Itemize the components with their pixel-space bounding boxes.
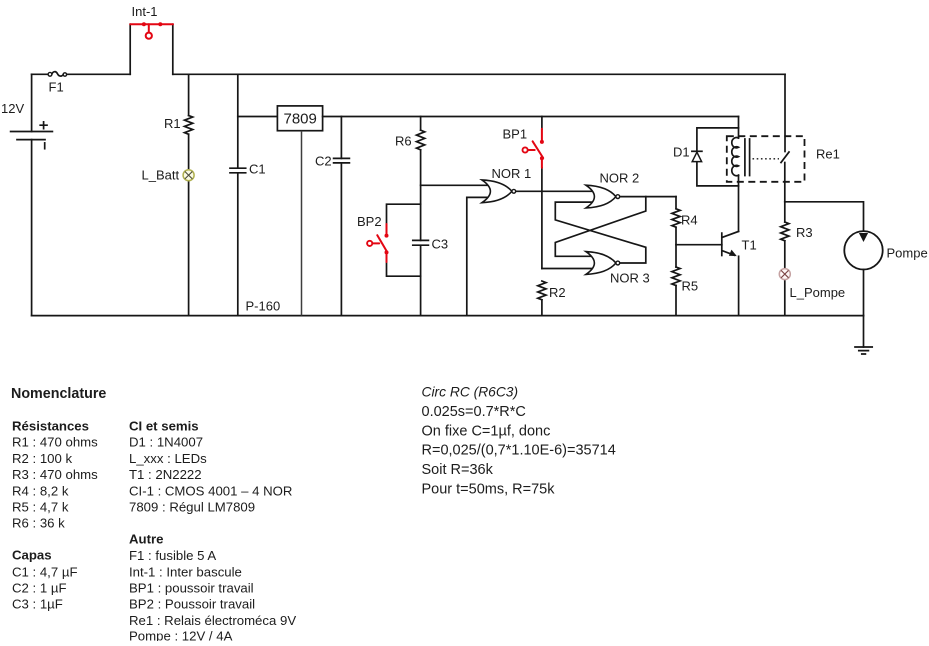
svg-text:L_Pompe: L_Pompe [790, 285, 846, 300]
svg-text:BP1: BP1 [503, 127, 528, 142]
svg-text:R1: R1 [164, 116, 181, 131]
svg-text:R5 : 4,7 k: R5 : 4,7 k [12, 500, 69, 515]
svg-text:Soit R=36k: Soit R=36k [422, 462, 494, 478]
svg-text:L_Batt: L_Batt [142, 168, 180, 183]
svg-text:C2 : 1 µF: C2 : 1 µF [12, 581, 67, 596]
svg-text:CI et semis: CI et semis [129, 419, 199, 434]
svg-text:Int-1 : Inter bascule: Int-1 : Inter bascule [129, 564, 242, 579]
svg-text:Nomenclature: Nomenclature [11, 386, 106, 402]
svg-text:Pour t=50ms, R=75k: Pour t=50ms, R=75k [422, 482, 556, 498]
svg-text:Pompe : 12V / 4A: Pompe : 12V / 4A [129, 629, 233, 642]
svg-text:BP2 : Poussoir travail: BP2 : Poussoir travail [129, 597, 255, 612]
svg-text:F1 : fusible 5 A: F1 : fusible 5 A [129, 548, 216, 563]
svg-text:D1 : 1N4007: D1 : 1N4007 [129, 435, 203, 450]
svg-text:Re1 : Relais électroméca 9V: Re1 : Relais électroméca 9V [129, 613, 296, 628]
svg-text:7809: 7809 [284, 111, 317, 128]
svg-text:12V: 12V [1, 101, 24, 116]
svg-text:C3 : 1µF: C3 : 1µF [12, 597, 63, 612]
svg-text:R4 : 8,2 k: R4 : 8,2 k [12, 483, 69, 498]
svg-text:BP1 : poussoir travail: BP1 : poussoir travail [129, 581, 254, 596]
svg-text:0.025s=0.7*R*C: 0.025s=0.7*R*C [422, 404, 526, 420]
svg-text:R3: R3 [796, 225, 813, 240]
svg-text:R2 : 100 k: R2 : 100 k [12, 451, 73, 466]
svg-text:NOR 2: NOR 2 [600, 171, 640, 186]
svg-text:T1: T1 [742, 238, 757, 253]
svg-text:R6: R6 [395, 134, 412, 149]
svg-text:R5: R5 [682, 279, 699, 294]
svg-text:F1: F1 [49, 80, 64, 95]
svg-text:R2: R2 [549, 285, 566, 300]
svg-text:R4: R4 [681, 213, 698, 228]
svg-text:R=0,025/(0,7*1.10E-6)=35714: R=0,025/(0,7*1.10E-6)=35714 [422, 443, 616, 459]
svg-text:NOR 1: NOR 1 [492, 166, 532, 181]
svg-text:R6 : 36 k: R6 : 36 k [12, 516, 65, 531]
svg-text:NOR 3: NOR 3 [610, 271, 650, 286]
svg-text:BP2: BP2 [357, 214, 382, 229]
svg-text:D1: D1 [673, 145, 690, 160]
svg-text:R1 : 470 ohms: R1 : 470 ohms [12, 435, 98, 450]
svg-text:Résistances: Résistances [12, 419, 89, 434]
svg-text:Pompe: Pompe [887, 246, 928, 261]
svg-text:P-160: P-160 [246, 299, 281, 314]
svg-text:Autre: Autre [129, 532, 163, 547]
svg-text:Int-1: Int-1 [132, 4, 158, 19]
svg-text:On fixe C=1µf, donc: On fixe C=1µf, donc [422, 423, 551, 439]
svg-text:T1 : 2N2222: T1 : 2N2222 [129, 467, 202, 482]
svg-text:Re1: Re1 [816, 147, 840, 162]
svg-text:L_xxx : LEDs: L_xxx : LEDs [129, 451, 207, 466]
svg-text:Circ RC (R6C3): Circ RC (R6C3) [422, 385, 519, 400]
svg-text:Capas: Capas [12, 548, 52, 563]
svg-text:C1: C1 [249, 162, 266, 177]
svg-text:7809 : Régul LM7809: 7809 : Régul LM7809 [129, 500, 255, 515]
svg-text:C2: C2 [315, 154, 332, 169]
svg-text:C1 : 4,7 µF: C1 : 4,7 µF [12, 564, 78, 579]
svg-text:CI-1 : CMOS 4001 – 4 NOR: CI-1 : CMOS 4001 – 4 NOR [129, 483, 292, 498]
svg-text:C3: C3 [432, 237, 449, 252]
svg-text:R3 : 470 ohms: R3 : 470 ohms [12, 467, 98, 482]
